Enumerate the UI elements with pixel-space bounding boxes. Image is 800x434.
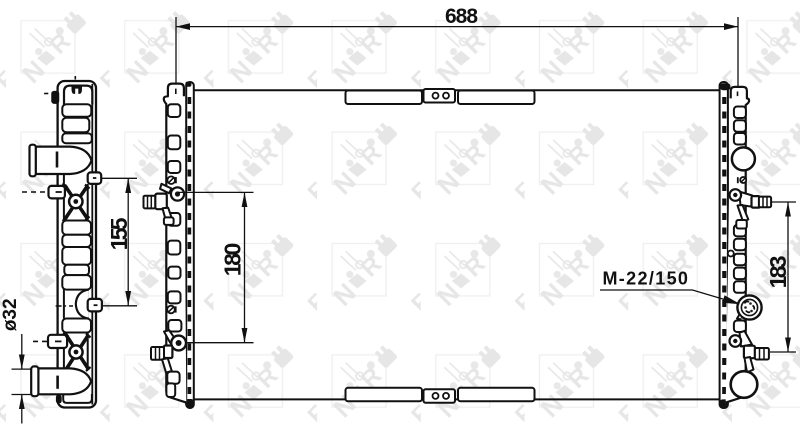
svg-text:155: 155: [106, 217, 132, 250]
svg-text:ø32: ø32: [0, 298, 21, 331]
svg-text:688: 688: [445, 5, 478, 28]
svg-text:183: 183: [765, 255, 791, 288]
svg-text:M-22/150: M-22/150: [602, 269, 688, 289]
svg-text:180: 180: [219, 243, 245, 276]
